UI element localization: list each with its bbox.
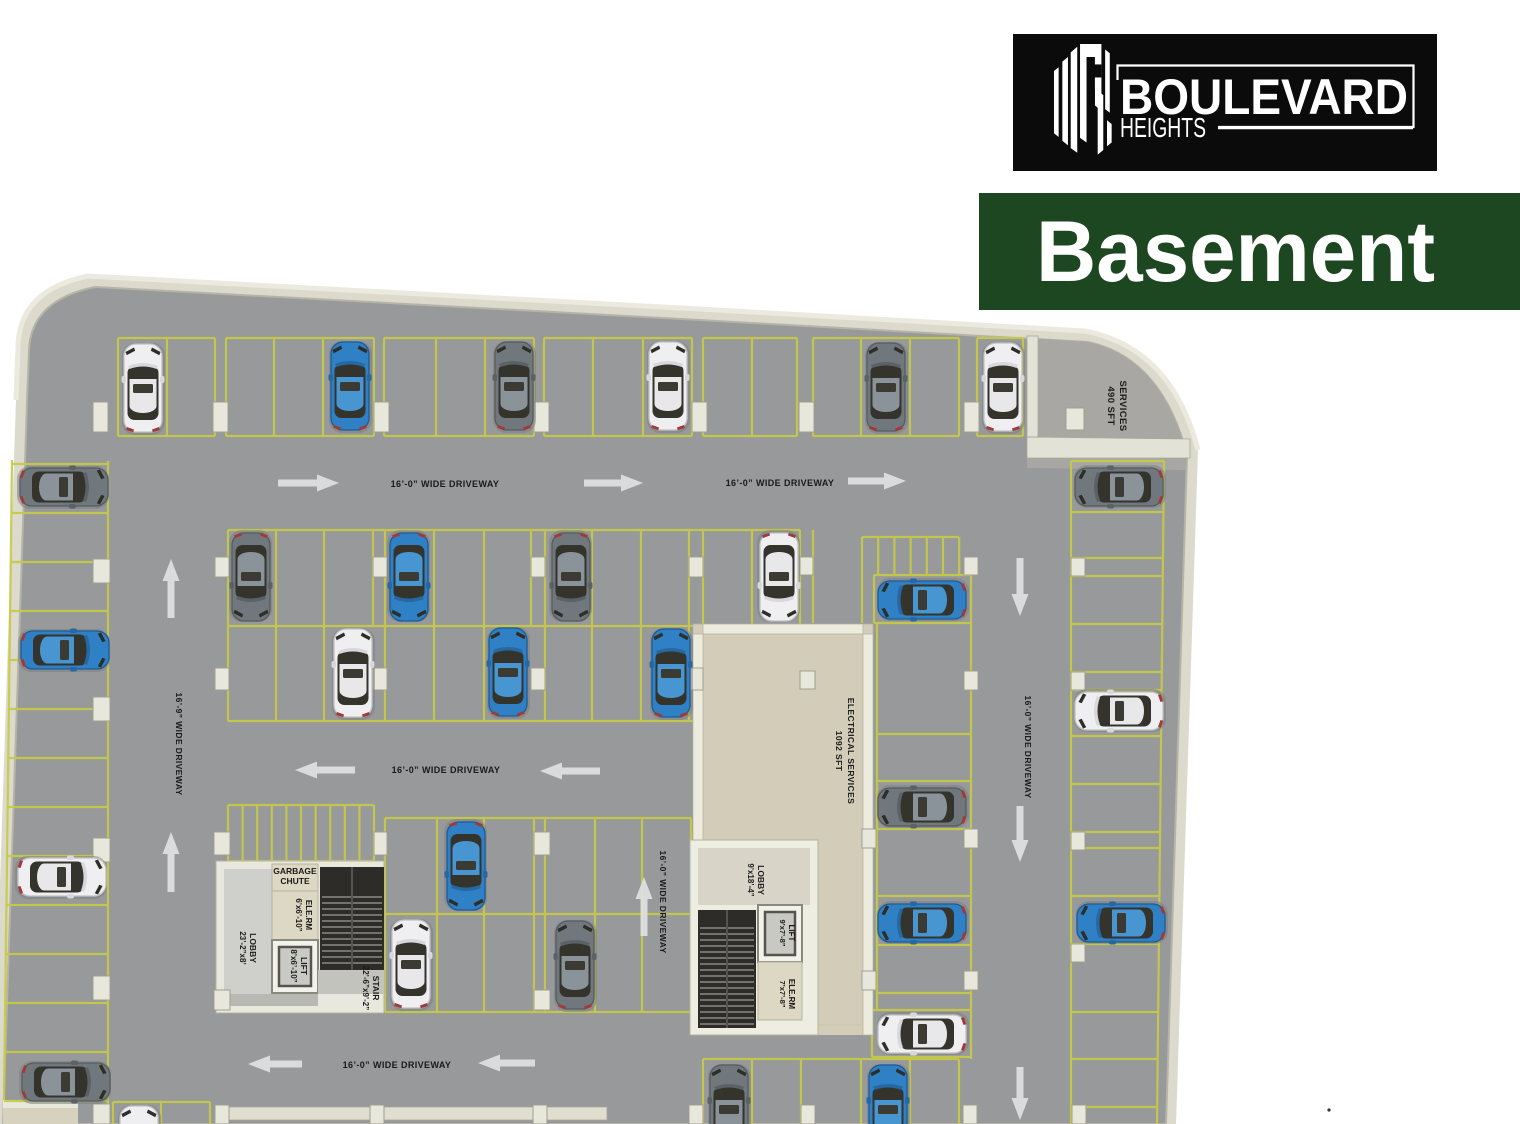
svg-text:16’-0” WIDE DRIVEWAY: 16’-0” WIDE DRIVEWAY bbox=[1023, 695, 1033, 798]
svg-text:9’x7’-8”: 9’x7’-8” bbox=[778, 919, 787, 946]
svg-text:16’-9” WIDE DRIVEWAY: 16’-9” WIDE DRIVEWAY bbox=[174, 692, 184, 795]
svg-text:SERVICES: SERVICES bbox=[1117, 380, 1128, 431]
svg-text:ELECTRICAL SERVICES: ELECTRICAL SERVICES bbox=[846, 698, 856, 804]
svg-text:16’-0” WIDE DRIVEWAY: 16’-0” WIDE DRIVEWAY bbox=[392, 765, 501, 775]
svg-text:GARBAGE: GARBAGE bbox=[273, 866, 317, 876]
svg-text:HEIGHTS: HEIGHTS bbox=[1120, 112, 1206, 143]
svg-text:ELE.RM: ELE.RM bbox=[787, 979, 796, 1010]
svg-text:22’-6”x9’-2”: 22’-6”x9’-2” bbox=[361, 966, 370, 1010]
svg-text:9’x18’-4”: 9’x18’-4” bbox=[746, 863, 755, 896]
svg-text:Basement: Basement bbox=[1036, 204, 1435, 300]
svg-text:LOBBY: LOBBY bbox=[248, 933, 258, 963]
svg-text:CHUTE: CHUTE bbox=[280, 876, 310, 886]
svg-text:7’x7’-8”: 7’x7’-8” bbox=[778, 980, 787, 1007]
svg-text:6’x6’-10”: 6’x6’-10” bbox=[294, 898, 303, 931]
svg-text:LIFT: LIFT bbox=[299, 957, 309, 976]
svg-text:490 SFT: 490 SFT bbox=[1105, 386, 1116, 425]
svg-text:23’-2”x8’: 23’-2”x8’ bbox=[238, 931, 247, 964]
svg-text:16’-0” WIDE DRIVEWAY: 16’-0” WIDE DRIVEWAY bbox=[343, 1060, 452, 1070]
svg-text:8’x6’-10”: 8’x6’-10” bbox=[289, 949, 298, 982]
svg-text:16’-0” WIDE DRIVEWAY: 16’-0” WIDE DRIVEWAY bbox=[391, 479, 500, 489]
svg-text:1092 SFT: 1092 SFT bbox=[834, 731, 844, 772]
svg-text:STAIR: STAIR bbox=[371, 976, 381, 1001]
svg-text:16’-0” WIDE DRIVEWAY: 16’-0” WIDE DRIVEWAY bbox=[726, 478, 835, 488]
svg-text:16’-0” WIDE DRIVEWAY: 16’-0” WIDE DRIVEWAY bbox=[658, 850, 668, 953]
svg-text:LOBBY: LOBBY bbox=[756, 865, 766, 895]
svg-text:LIFT: LIFT bbox=[787, 925, 796, 942]
svg-text:ELE.RM: ELE.RM bbox=[304, 900, 313, 931]
